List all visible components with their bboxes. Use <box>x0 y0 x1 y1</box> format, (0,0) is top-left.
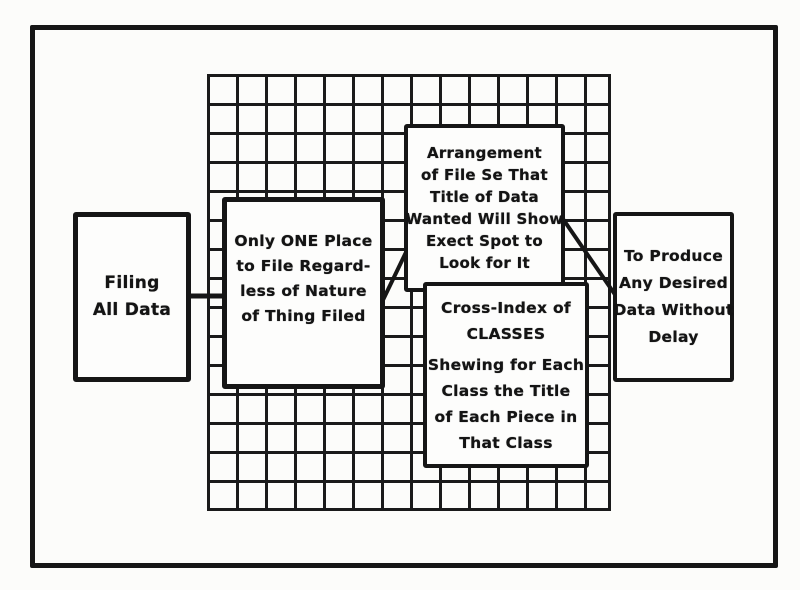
box-text-line: Look for It <box>439 252 530 274</box>
box-text-line: Cross-Index of <box>441 295 571 321</box>
one-place-to-file-box: Only ONE Place to File Regard- less of N… <box>222 197 385 389</box>
box-text-line: of Thing Filed <box>241 304 365 329</box>
box-text-line: Wanted Will Show <box>406 208 564 230</box>
box-text-line: Class the Title <box>442 378 571 404</box>
box-text-line: Delay <box>648 324 698 351</box>
box-text-line: to File Regard- <box>236 254 370 279</box>
box-text-line: Arrangement <box>427 142 542 164</box>
box-text-line: Only ONE Place <box>234 229 372 254</box>
box-text-line: Any Desired <box>619 270 728 297</box>
arrangement-of-file-box: Arrangement of File Se That Title of Dat… <box>404 124 565 292</box>
box-text-line: Title of Data <box>430 186 539 208</box>
box-text-line: Filing <box>104 270 159 297</box>
box-text-line: less of Nature <box>240 279 367 304</box>
box-text-line: That Class <box>459 430 552 456</box>
box-text-line: Exect Spot to <box>426 230 543 252</box>
box-text-line: of Each Piece in <box>435 404 578 430</box>
box-text-line: To Produce <box>624 243 723 270</box>
filing-all-data-box: Filing All Data <box>73 212 191 382</box>
box-text-line: All Data <box>93 297 171 324</box>
cross-index-of-classes-box: Cross-Index of CLASSES Shewing for Each … <box>423 282 589 468</box>
box-text-line: CLASSES <box>467 321 546 347</box>
box-text-line: Data Without <box>613 297 733 324</box>
box-text-line: of File Se That <box>421 164 548 186</box>
box-text-line: Shewing for Each <box>428 352 584 378</box>
diagram-canvas: Filing All Data Only ONE Place to File R… <box>0 0 800 590</box>
to-produce-data-box: To Produce Any Desired Data Without Dela… <box>613 212 734 382</box>
